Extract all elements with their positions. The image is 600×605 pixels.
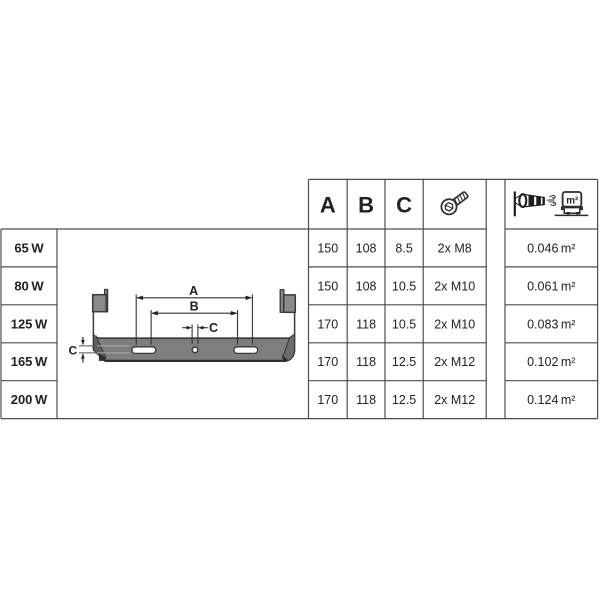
svg-text:2x M12: 2x M12 xyxy=(434,355,475,369)
svg-text:0.083 m²: 0.083 m² xyxy=(527,317,575,331)
svg-text:108: 108 xyxy=(356,279,377,293)
svg-text:C: C xyxy=(68,344,77,358)
svg-text:150: 150 xyxy=(317,279,338,293)
svg-text:125 W: 125 W xyxy=(11,316,48,331)
svg-text:108: 108 xyxy=(356,242,377,256)
svg-text:80 W: 80 W xyxy=(14,278,44,293)
svg-text:B: B xyxy=(190,300,199,314)
svg-text:2x M10: 2x M10 xyxy=(434,279,475,293)
svg-text:118: 118 xyxy=(356,393,376,407)
svg-text:2x M10: 2x M10 xyxy=(434,317,475,331)
svg-text:2x M12: 2x M12 xyxy=(434,393,475,407)
svg-text:8.5: 8.5 xyxy=(395,242,412,256)
svg-text:12.5: 12.5 xyxy=(392,393,416,407)
svg-text:B: B xyxy=(358,193,374,218)
svg-text:C: C xyxy=(209,321,218,335)
svg-text:170: 170 xyxy=(317,393,338,407)
svg-text:A: A xyxy=(189,284,198,298)
svg-text:0.046 m²: 0.046 m² xyxy=(527,242,575,256)
svg-text:170: 170 xyxy=(317,317,338,331)
svg-text:170: 170 xyxy=(317,355,338,369)
svg-text:65 W: 65 W xyxy=(14,241,44,256)
svg-text:165 W: 165 W xyxy=(11,354,48,369)
svg-text:0.061 m²: 0.061 m² xyxy=(527,279,575,293)
svg-text:0.124 m²: 0.124 m² xyxy=(527,393,575,407)
svg-text:C: C xyxy=(396,193,412,218)
svg-text:0.102 m²: 0.102 m² xyxy=(527,355,575,369)
svg-text:A: A xyxy=(320,193,336,218)
svg-text:10.5: 10.5 xyxy=(392,279,416,293)
svg-text:2x M8: 2x M8 xyxy=(438,242,472,256)
svg-text:12.5: 12.5 xyxy=(392,355,416,369)
svg-text:200 W: 200 W xyxy=(11,392,48,407)
svg-text:m²: m² xyxy=(566,195,579,206)
svg-text:10.5: 10.5 xyxy=(392,317,416,331)
svg-text:150: 150 xyxy=(317,242,338,256)
svg-text:118: 118 xyxy=(356,355,376,369)
svg-text:118: 118 xyxy=(356,317,376,331)
